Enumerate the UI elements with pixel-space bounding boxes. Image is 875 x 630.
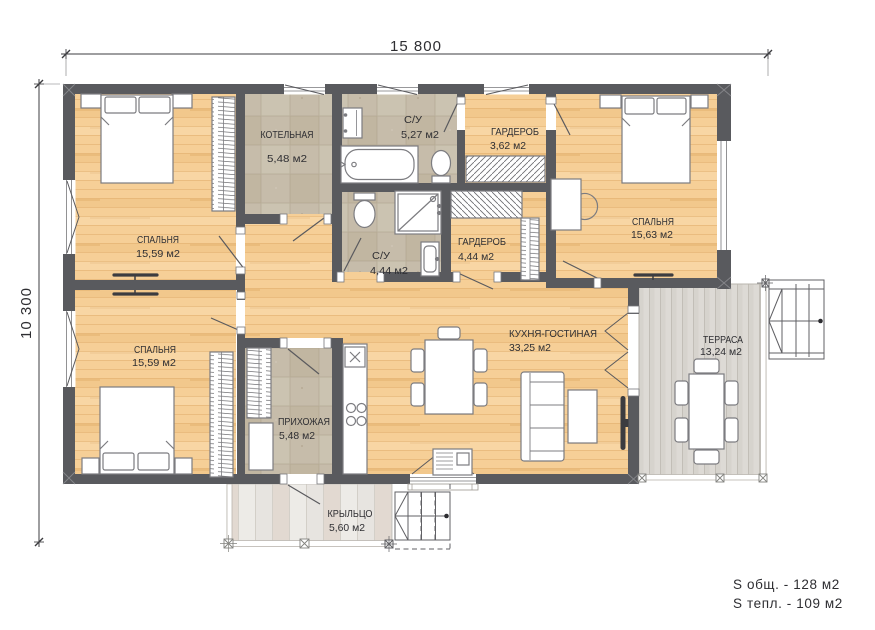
svg-text:10 300: 10 300 (18, 287, 35, 339)
svg-text:С/У: С/У (404, 115, 423, 126)
svg-text:ПРИХОЖАЯ: ПРИХОЖАЯ (278, 417, 330, 428)
svg-text:13,24 м2: 13,24 м2 (700, 346, 742, 358)
svg-text:S общ. - 128 м2: S общ. - 128 м2 (733, 577, 840, 592)
svg-text:15 800: 15 800 (390, 38, 442, 55)
svg-text:ГАРДЕРОБ: ГАРДЕРОБ (491, 127, 539, 138)
svg-text:3,62 м2: 3,62 м2 (490, 140, 526, 152)
svg-text:4,44 м2: 4,44 м2 (370, 265, 408, 277)
svg-text:5,48 м2: 5,48 м2 (267, 153, 307, 165)
svg-text:S тепл. - 109 м2: S тепл. - 109 м2 (733, 596, 843, 611)
svg-text:СПАЛЬНЯ: СПАЛЬНЯ (137, 235, 179, 246)
svg-text:СПАЛЬНЯ: СПАЛЬНЯ (134, 345, 176, 356)
svg-text:33,25 м2: 33,25 м2 (509, 342, 551, 354)
svg-text:С/У: С/У (372, 251, 391, 262)
svg-text:КОТЕЛЬНАЯ: КОТЕЛЬНАЯ (261, 130, 314, 141)
svg-text:ТЕРРАСА: ТЕРРАСА (703, 335, 743, 346)
svg-text:СПАЛЬНЯ: СПАЛЬНЯ (632, 217, 674, 228)
svg-text:5,60 м2: 5,60 м2 (329, 522, 365, 534)
svg-text:5,27 м2: 5,27 м2 (401, 129, 439, 141)
svg-text:КУХНЯ-ГОСТИНАЯ: КУХНЯ-ГОСТИНАЯ (509, 329, 597, 340)
svg-text:ГАРДЕРОБ: ГАРДЕРОБ (458, 237, 506, 248)
svg-text:15,63 м2: 15,63 м2 (631, 229, 673, 241)
svg-text:15,59 м2: 15,59 м2 (132, 357, 176, 369)
svg-text:15,59 м2: 15,59 м2 (136, 248, 180, 260)
svg-text:КРЫЛЬЦО: КРЫЛЬЦО (328, 509, 373, 520)
svg-text:5,48 м2: 5,48 м2 (279, 430, 315, 442)
svg-text:4,44 м2: 4,44 м2 (458, 251, 494, 263)
